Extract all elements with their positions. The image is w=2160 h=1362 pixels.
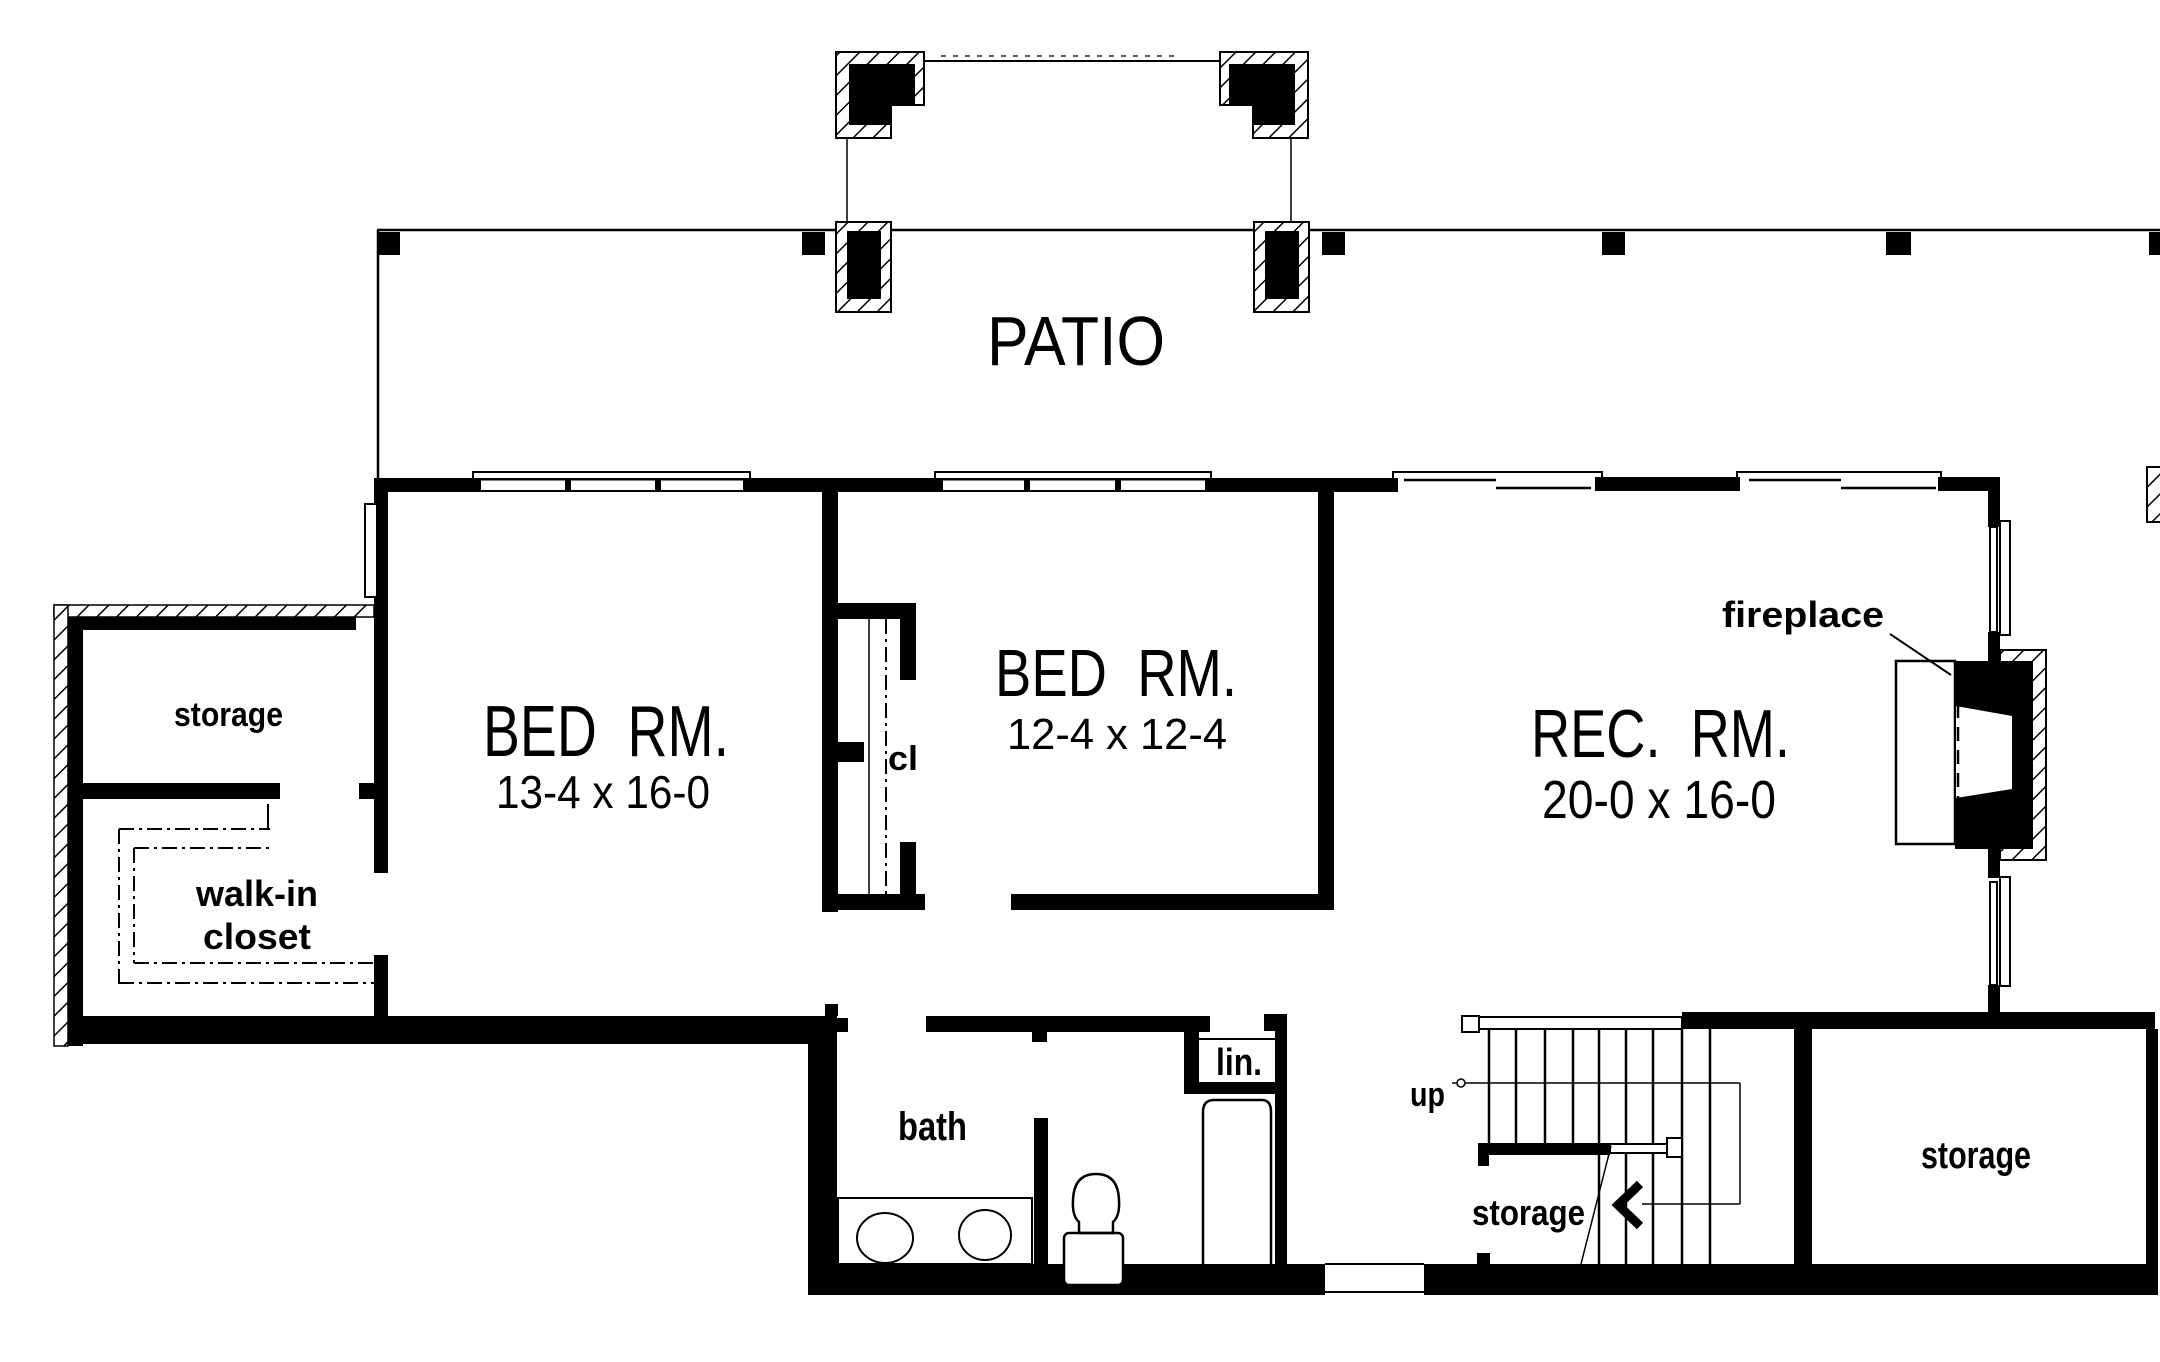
svg-text:storage: storage [1472,1192,1585,1233]
svg-text:up: up [1410,1076,1445,1114]
svg-text:13-4 x 16-0: 13-4 x 16-0 [496,766,710,818]
svg-text:REC. RM.: REC. RM. [1531,696,1790,772]
svg-text:cl: cl [888,740,918,778]
svg-text:storage: storage [174,696,283,734]
svg-text:closet: closet [203,916,311,957]
svg-text:12-4 x 12-4: 12-4 x 12-4 [1007,710,1227,759]
svg-text:fireplace: fireplace [1722,594,1884,635]
svg-text:storage: storage [1921,1135,2031,1177]
svg-text:walk-in: walk-in [195,873,318,914]
svg-text:bath: bath [898,1105,967,1149]
svg-text:BED RM.: BED RM. [995,636,1237,711]
svg-text:PATIO: PATIO [987,302,1165,380]
svg-text:BED RM.: BED RM. [483,692,729,772]
svg-text:20-0 x 16-0: 20-0 x 16-0 [1542,770,1776,830]
svg-text:lin.: lin. [1216,1042,1262,1084]
